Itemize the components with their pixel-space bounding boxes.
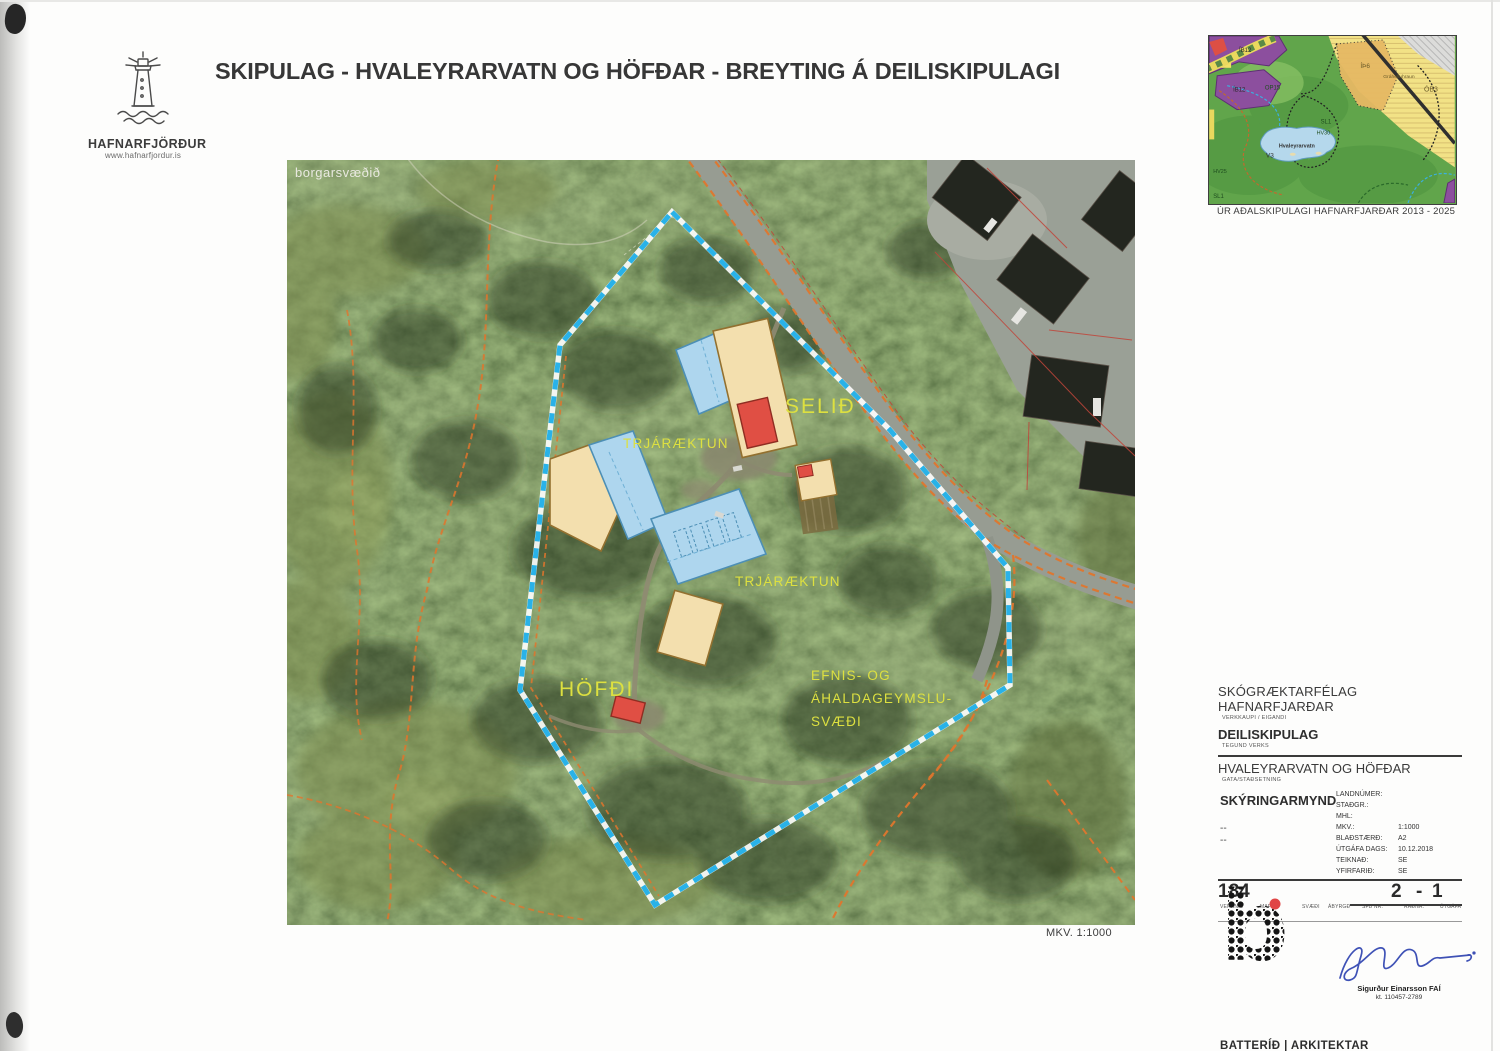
field-value: 1:1000: [1398, 824, 1458, 831]
building-small-square: [795, 459, 837, 501]
field-label: ÚTGÁFA DAGS:: [1336, 846, 1398, 853]
label-selid: SELIÐ: [785, 395, 856, 418]
label-lake: Hvaleyrarvatn: [1279, 143, 1315, 149]
label-sl1-corner: SL1: [1213, 194, 1224, 200]
work-type: DEILISKIPULAG: [1218, 727, 1462, 742]
logo-letter-b: b: [1220, 882, 1289, 972]
field-value: SE: [1398, 868, 1458, 875]
logo-red-dot: [1270, 899, 1281, 910]
field-label: YFIRFARIÐ:: [1336, 868, 1398, 875]
masterplan-inset: ÍB12 ÍB12 OP15 ÍÞ6 Gráhelluhraun ÓB3 SL1…: [1208, 35, 1457, 205]
client-caption: VERKKAUPI / EIGANDI: [1222, 715, 1462, 721]
field-value: 10.12.2018: [1398, 846, 1458, 853]
firm-name: BATTERÍÐ | ARKITEKTAR: [1220, 1040, 1369, 1051]
field-label: STAÐGR.:: [1336, 802, 1398, 809]
label-hv30: HV30: [1317, 130, 1331, 136]
label-ib12-a: ÍB12: [1239, 47, 1252, 54]
title-block: SKÓGRÆKTARFÉLAG HAFNARFJARÐAR VERKKAUPI …: [1218, 684, 1462, 1051]
field-row: MHL:: [1336, 811, 1458, 822]
municipality-url: www.hafnarfjordur.is: [88, 151, 198, 160]
number-dash: -: [1416, 881, 1422, 903]
inset-caption: ÚR AÐALSKIPULAGI HAFNARFJARÐAR 2013 - 20…: [1217, 206, 1455, 217]
label-efnis-1: EFNIS- OG: [811, 668, 891, 683]
masterplan-canvas: ÍB12 ÍB12 OP15 ÍÞ6 Gráhelluhraun ÓB3 SL1…: [1209, 36, 1455, 203]
drawing-title: SKÝRINGARMYND: [1220, 793, 1336, 808]
label-ith6: ÍÞ6: [1360, 61, 1370, 70]
aerial-map: borgarsvæðið SELIÐ HÖFÐI TRJÁRÆKTUN TRJÁ…: [287, 160, 1135, 925]
divider: [1350, 904, 1462, 906]
field-row: LANDNÚMER:: [1336, 789, 1458, 800]
field-label: MHL:: [1336, 813, 1398, 820]
label-trjaraektun-lower: TRJÁRÆKTUN: [735, 574, 841, 589]
field-value: SE: [1398, 857, 1458, 864]
label-hofdi: HÖFÐI: [559, 678, 634, 701]
divider: [1218, 755, 1462, 757]
revision-number: 1: [1432, 881, 1443, 903]
label-sl1: SL1: [1321, 119, 1332, 125]
label-efnis-3: SVÆÐI: [811, 714, 862, 729]
metadata-block: SKÝRINGARMYND -- -- LANDNÚMER: STAÐGR.: …: [1218, 789, 1462, 877]
field-row: TEIKNAÐ:SE: [1336, 855, 1458, 866]
field-label: TEIKNAÐ:: [1336, 857, 1398, 864]
field-row: STAÐGR.:: [1336, 800, 1458, 811]
site-caption: GATA/STAÐSETNING: [1222, 777, 1462, 783]
municipality-logo: HAFNARFJÖRÐUR www.hafnarfjordur.is: [88, 50, 198, 160]
work-type-caption: TEGUND VERKS: [1222, 743, 1462, 749]
label-op15: OP15: [1265, 86, 1281, 92]
plan-sheet: HAFNARFJÖRÐUR www.hafnarfjordur.is SKIPU…: [0, 0, 1500, 1051]
sheet-number: 2: [1391, 881, 1402, 903]
field-label: LANDNÚMER:: [1336, 791, 1398, 798]
signature-icon: [1328, 936, 1478, 986]
metadata-fields: LANDNÚMER: STAÐGR.: MHL: MKV.:1:1000 BLA…: [1336, 789, 1458, 877]
label-grahelluhraun: Gráhelluhraun: [1383, 74, 1415, 80]
signature-name: Sigurður Einarsson FAÍ: [1336, 984, 1462, 993]
note-dash-1: --: [1220, 823, 1227, 834]
map-scale-note: MKV. 1:1000: [1046, 927, 1112, 939]
batterid-logo: b: [1218, 882, 1318, 972]
label-borgarsvaedid: borgarsvæðið: [295, 165, 381, 180]
field-value: A2: [1398, 835, 1458, 842]
scan-edge-right: [1491, 0, 1493, 1051]
label-hv25: HV25: [1213, 169, 1227, 175]
field-row: YFIRFARIÐ:SE: [1336, 866, 1458, 877]
field-row: ÚTGÁFA DAGS:10.12.2018: [1336, 844, 1458, 855]
aerial-map-canvas: borgarsvæðið SELIÐ HÖFÐI TRJÁRÆKTUN TRJÁ…: [287, 160, 1135, 925]
field-row: MKV.:1:1000: [1336, 822, 1458, 833]
field-label: BLAÐSTÆRÐ:: [1336, 835, 1398, 842]
label-trjaraektun-upper: TRJÁRÆKTUN: [623, 436, 729, 451]
lighthouse-icon: [88, 50, 198, 130]
label-efnis-2: ÁHALDAGEYMSLU-: [811, 691, 952, 706]
label-ib12-b: ÍB12: [1233, 87, 1246, 94]
col-abyrgd: ÁBYRGÐ: [1328, 904, 1350, 910]
page-title: SKIPULAG - HVALEYRARVATN OG HÖFÐAR - BRE…: [215, 58, 1060, 85]
municipality-name: HAFNARFJÖRÐUR: [88, 137, 198, 151]
note-dash-2: --: [1220, 835, 1227, 846]
label-v3: V3: [1266, 152, 1274, 159]
signature-id: kt. 110457-2789: [1336, 994, 1462, 1001]
site-name: HVALEYRARVATN OG HÖFÐAR: [1218, 761, 1462, 776]
field-row: BLAÐSTÆRÐ:A2: [1336, 833, 1458, 844]
label-ob3: ÓB3: [1424, 85, 1438, 94]
scan-edge-left: [0, 0, 30, 1051]
scan-edge-top: [0, 0, 1500, 2]
field-label: MKV.:: [1336, 824, 1398, 831]
client-name: SKÓGRÆKTARFÉLAG HAFNARFJARÐAR: [1218, 684, 1462, 714]
